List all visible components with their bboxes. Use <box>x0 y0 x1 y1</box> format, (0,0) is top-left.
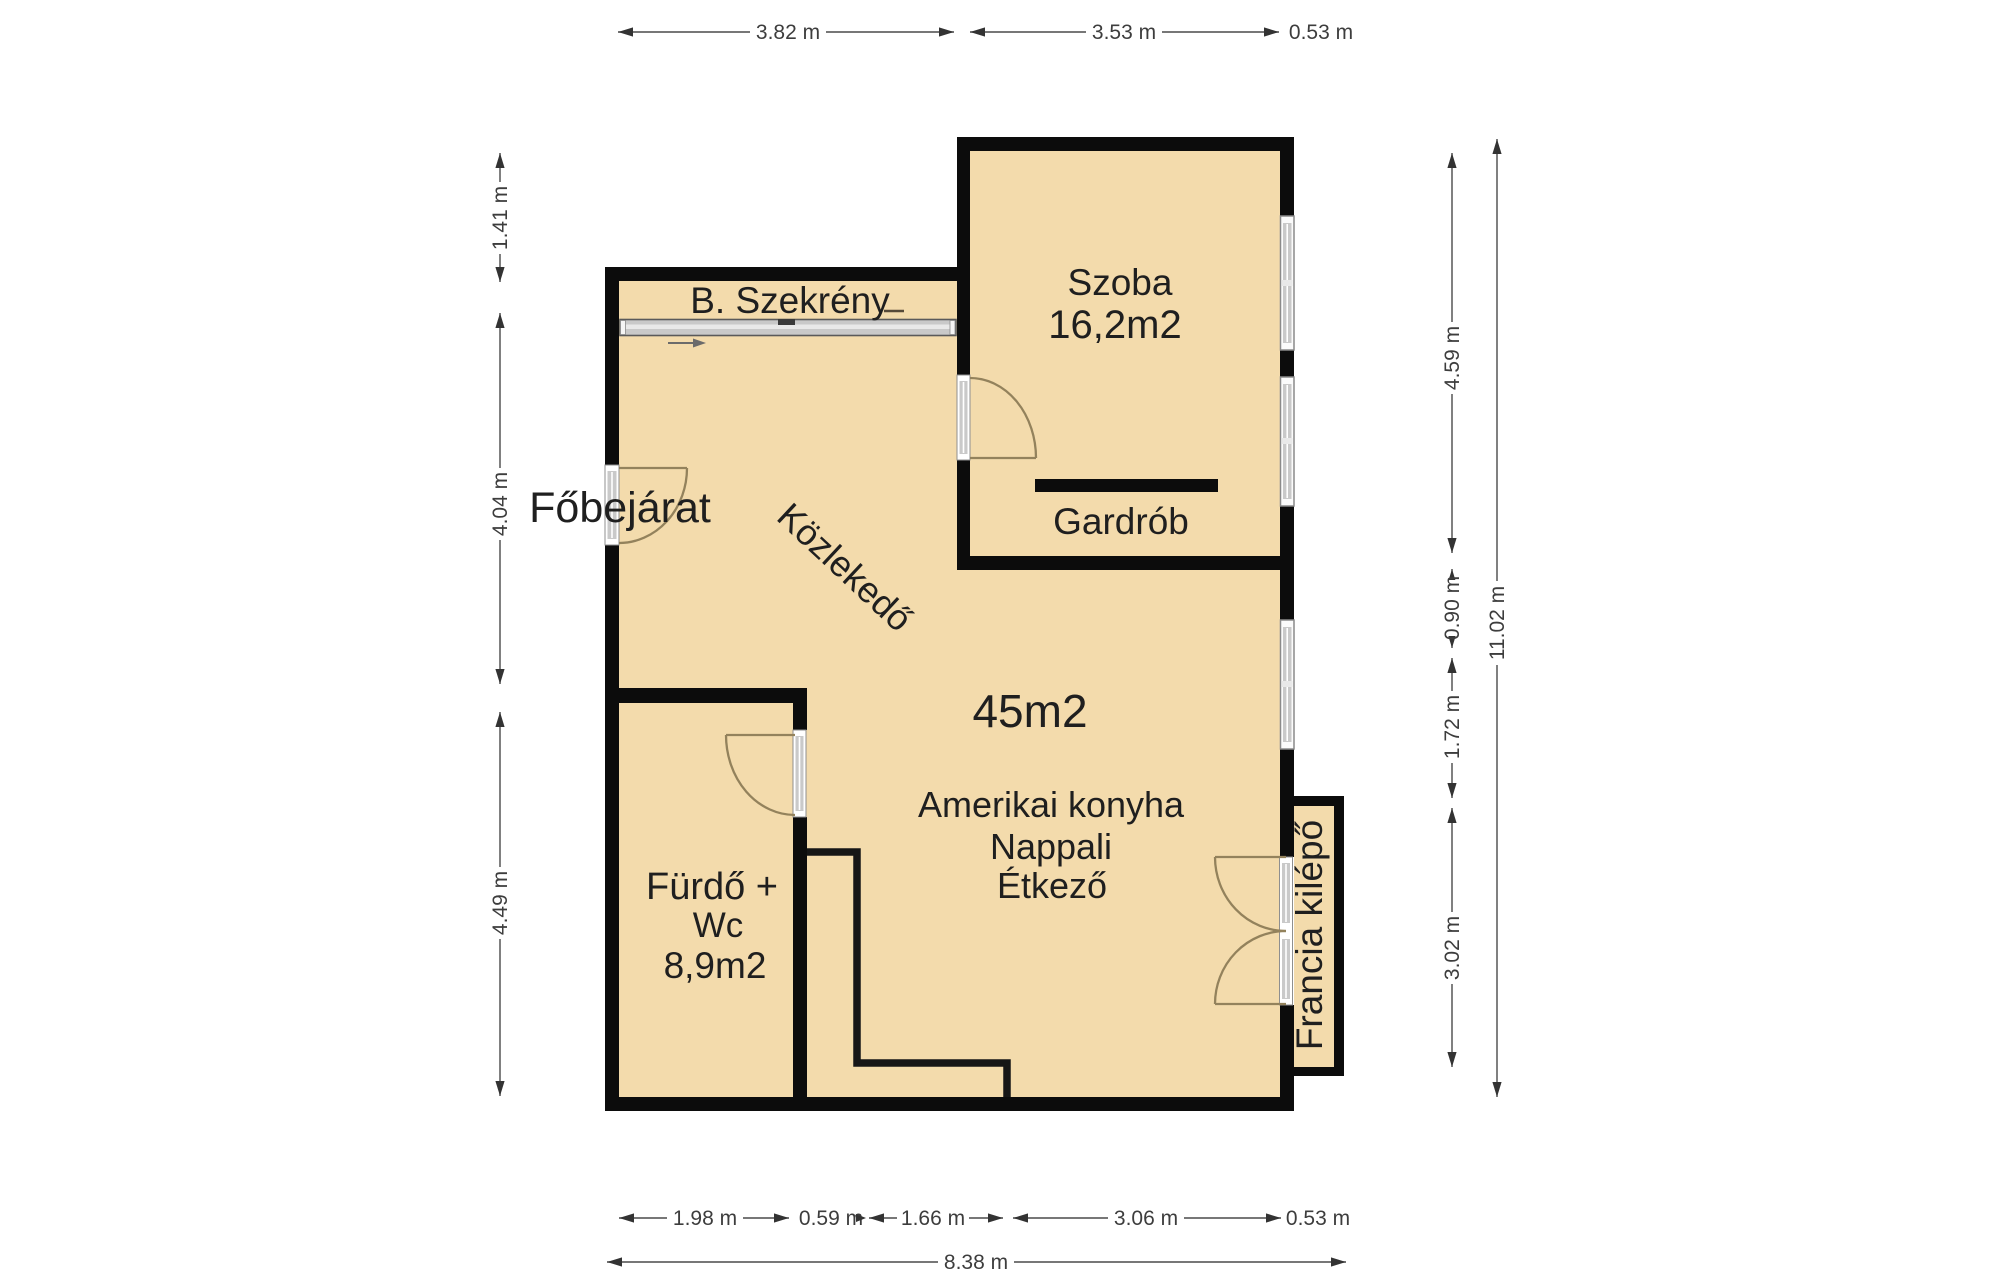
svg-text:Amerikai konyha: Amerikai konyha <box>918 784 1185 825</box>
svg-text:0.59 m: 0.59 m <box>799 1207 863 1230</box>
svg-text:1.41 m: 1.41 m <box>489 186 512 250</box>
svg-text:3.02 m: 3.02 m <box>1441 916 1464 980</box>
svg-text:1.98 m: 1.98 m <box>673 1207 737 1230</box>
svg-text:Nappali: Nappali <box>990 826 1112 867</box>
svg-text:Fürdő +: Fürdő + <box>646 866 778 908</box>
svg-text:3.82 m: 3.82 m <box>756 21 820 44</box>
svg-text:Étkező: Étkező <box>997 865 1107 906</box>
svg-text:1.72 m: 1.72 m <box>1441 695 1464 759</box>
svg-text:11.02 m: 11.02 m <box>1486 586 1509 660</box>
svg-text:Gardrób: Gardrób <box>1053 501 1189 542</box>
svg-text:0.53 m: 0.53 m <box>1286 1207 1350 1230</box>
svg-text:1.66 m: 1.66 m <box>901 1207 965 1230</box>
svg-text:0.90 m: 0.90 m <box>1441 576 1464 640</box>
svg-text:8.38 m: 8.38 m <box>944 1251 1008 1274</box>
svg-text:16,2m2: 16,2m2 <box>1048 303 1181 347</box>
svg-text:Francia kilépő: Francia kilépő <box>1289 820 1330 1050</box>
svg-text:Szoba: Szoba <box>1068 262 1173 303</box>
svg-text:45m2: 45m2 <box>972 685 1087 737</box>
svg-text:Wc: Wc <box>693 906 744 945</box>
svg-text:4.49 m: 4.49 m <box>489 871 512 935</box>
svg-text:0.53 m: 0.53 m <box>1289 21 1353 44</box>
svg-text:3.53 m: 3.53 m <box>1092 21 1156 44</box>
svg-text:Főbejárat: Főbejárat <box>529 484 711 532</box>
svg-text:4.59 m: 4.59 m <box>1441 326 1464 390</box>
svg-text:B. Szekrény: B. Szekrény <box>690 280 890 321</box>
svg-text:3.06 m: 3.06 m <box>1114 1207 1178 1230</box>
svg-text:4.04 m: 4.04 m <box>489 472 512 536</box>
svg-text:8,9m2: 8,9m2 <box>664 945 767 986</box>
